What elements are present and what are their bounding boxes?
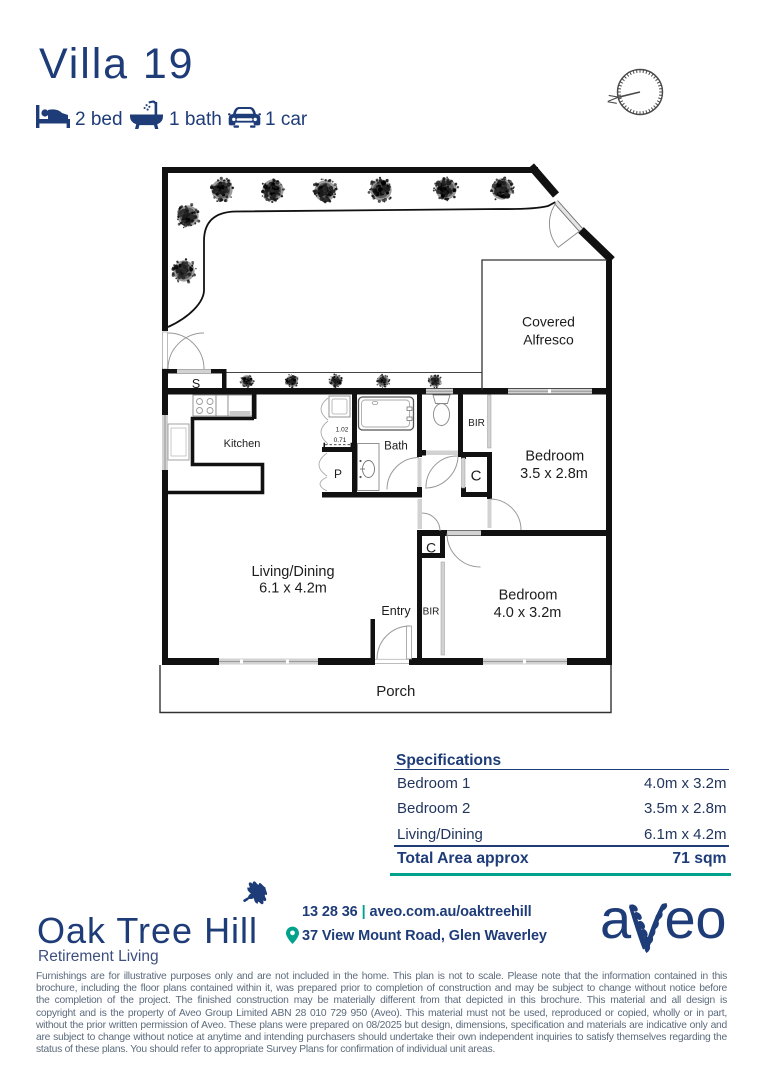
svg-text:C: C [471, 468, 482, 485]
svg-text:1.02: 1.02 [336, 427, 349, 434]
svg-text:BIR: BIR [468, 418, 485, 429]
svg-text:S: S [192, 377, 200, 391]
svg-text:0.71: 0.71 [334, 437, 347, 444]
svg-text:BIR: BIR [423, 607, 440, 618]
svg-text:C: C [426, 540, 436, 556]
svg-text:Living/Dining: Living/Dining [251, 564, 334, 580]
svg-text:Covered: Covered [522, 314, 575, 330]
svg-text:Kitchen: Kitchen [224, 438, 261, 450]
svg-text:Bath: Bath [384, 441, 408, 453]
svg-text:Entry: Entry [381, 604, 411, 618]
svg-text:Bedroom: Bedroom [525, 449, 584, 465]
svg-text:6.1 x 4.2m: 6.1 x 4.2m [259, 581, 327, 597]
svg-text:Bedroom: Bedroom [499, 588, 558, 604]
svg-text:4.0 x 3.2m: 4.0 x 3.2m [494, 605, 562, 621]
svg-text:3.5 x 2.8m: 3.5 x 2.8m [520, 466, 588, 482]
svg-text:Porch: Porch [376, 683, 415, 700]
svg-text:Alfresco: Alfresco [523, 332, 574, 348]
svg-text:P: P [334, 467, 342, 481]
